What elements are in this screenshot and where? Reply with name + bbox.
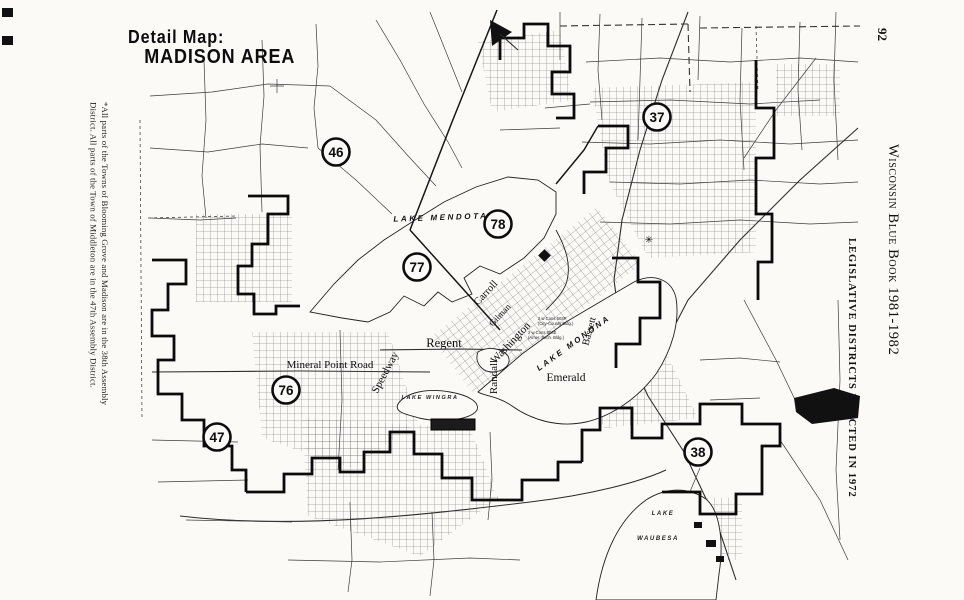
- lake-waubesa-shape: [596, 490, 721, 600]
- lake-label-waubesa-1: LAKE: [652, 511, 675, 517]
- lake-label-waubesa-2: WAUBESA: [637, 536, 679, 542]
- street-grid-patches: [196, 30, 840, 560]
- map-title-line2: MADISON AREA: [144, 47, 295, 68]
- street-label-emerald: Emerald: [547, 372, 586, 384]
- book-title: Wisconsin Blue Book 1981-1982: [884, 144, 901, 355]
- district-circle-76: 76: [273, 377, 300, 404]
- footnote-line1: *All parts of the Towns of Blooming Grov…: [99, 102, 111, 462]
- district-circle-38: 38: [685, 439, 712, 466]
- street-label-mineral-point: Mineral Point Road: [287, 359, 374, 371]
- district-circle-77: 77: [404, 254, 431, 281]
- svg-text:47: 47: [209, 430, 224, 445]
- scan-mark-lower: [2, 36, 13, 45]
- capitol-asterisk-marker: ✳: [645, 235, 653, 246]
- svg-text:38: 38: [690, 445, 706, 460]
- svg-text:76: 76: [278, 383, 294, 398]
- page-number: 92: [874, 28, 890, 41]
- district-circle-37: 37: [644, 104, 671, 131]
- map-svg: ✳ LAKE MENDOTA LAKE MONONA LAKE WINGRA L…: [0, 0, 964, 600]
- footnote-line2: District. All parts of the Town of Middl…: [87, 102, 99, 462]
- district-circle-78: 78: [485, 211, 512, 238]
- annotation-cons1b: (City-County Bldg.): [538, 321, 574, 326]
- svg-text:46: 46: [328, 145, 344, 160]
- svg-text:37: 37: [649, 110, 664, 125]
- dark-label-box: [431, 419, 475, 430]
- svg-text:78: 78: [490, 217, 506, 232]
- footnote: *All parts of the Towns of Blooming Grov…: [87, 102, 110, 462]
- annotation-cons2b: (Amer. Exch. Bldg.): [528, 335, 565, 340]
- scan-mark-top: [2, 8, 13, 17]
- map-title-line1: Detail Map:: [128, 28, 295, 47]
- street-label-regent: Regent: [426, 336, 462, 350]
- map-title: Detail Map: MADISON AREA: [128, 28, 295, 68]
- district-circle-47: 47: [204, 424, 231, 451]
- svg-text:77: 77: [409, 260, 424, 275]
- section-heading: LEGISLATIVE DISTRICTS ENACTED IN 1972: [846, 238, 857, 498]
- lake-label-wingra: LAKE WINGRA: [401, 395, 458, 401]
- scanned-book-page: ✳ LAKE MENDOTA LAKE MONONA LAKE WINGRA L…: [0, 0, 964, 600]
- district-circle-46: 46: [323, 139, 350, 166]
- registration-mark: [270, 79, 284, 93]
